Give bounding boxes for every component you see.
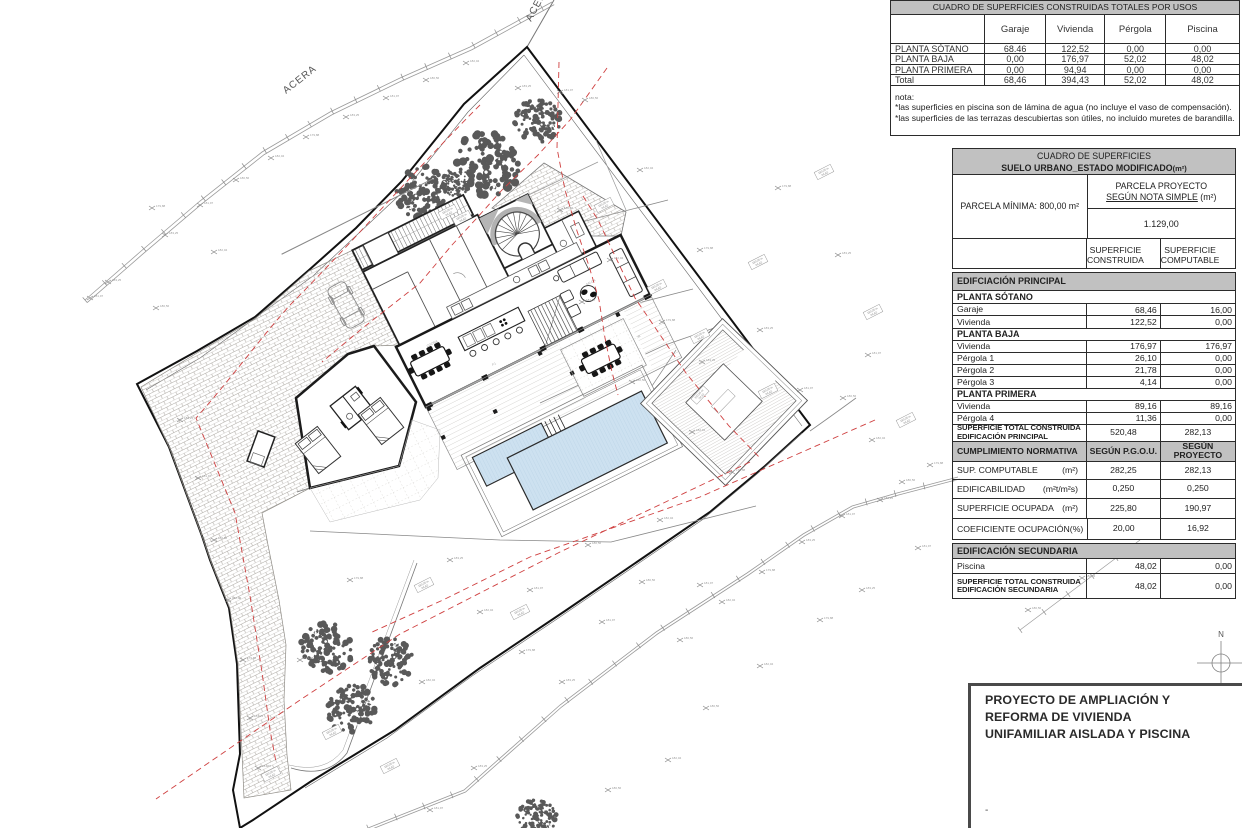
svg-text:180,56: 180,56 xyxy=(240,176,250,180)
svg-text:180,56: 180,56 xyxy=(636,378,646,382)
svg-text:181,97: 181,97 xyxy=(202,474,212,478)
svg-text:179,88: 179,88 xyxy=(354,576,364,580)
svg-text:182,04: 182,04 xyxy=(426,678,436,682)
svg-text:181,97: 181,97 xyxy=(872,351,882,355)
svg-text:180,56: 180,56 xyxy=(847,394,857,398)
svg-text:183,25: 183,25 xyxy=(764,326,774,330)
svg-text:181,97: 181,97 xyxy=(262,764,272,768)
svg-text:179,88: 179,88 xyxy=(736,468,746,472)
svg-text:180,56: 180,56 xyxy=(710,704,720,708)
svg-text:181,97: 181,97 xyxy=(922,544,932,548)
svg-text:180,56: 180,56 xyxy=(160,304,170,308)
svg-text:182,04: 182,04 xyxy=(644,166,654,170)
svg-text:182,04: 182,04 xyxy=(764,662,774,666)
svg-text:181,97: 181,97 xyxy=(390,94,400,98)
svg-text:180,56: 180,56 xyxy=(564,206,574,210)
svg-text:179,88: 179,88 xyxy=(156,204,166,208)
svg-text:182,04: 182,04 xyxy=(218,248,228,252)
svg-text:179,88: 179,88 xyxy=(766,568,776,572)
svg-text:179,88: 179,88 xyxy=(304,656,314,660)
svg-text:181,97: 181,97 xyxy=(94,294,104,298)
svg-text:182,04: 182,04 xyxy=(664,516,674,520)
svg-text:183,25: 183,25 xyxy=(454,556,464,560)
svg-text:N: N xyxy=(1218,630,1224,639)
svg-text:183,25: 183,25 xyxy=(254,714,264,718)
svg-text:182,04: 182,04 xyxy=(696,428,706,432)
svg-text:179,88: 179,88 xyxy=(247,656,257,660)
svg-text:180,56: 180,56 xyxy=(218,536,228,540)
svg-text:183,25: 183,25 xyxy=(112,278,122,282)
svg-text:179,88: 179,88 xyxy=(310,133,320,137)
svg-text:181,97: 181,97 xyxy=(804,386,814,390)
svg-text:180,56: 180,56 xyxy=(906,478,916,482)
svg-text:180,56: 180,56 xyxy=(430,76,440,80)
svg-text:183,25: 183,25 xyxy=(566,678,576,682)
svg-text:180,56: 180,56 xyxy=(592,541,602,545)
svg-text:181,97: 181,97 xyxy=(846,512,856,516)
svg-text:181,97: 181,97 xyxy=(704,581,714,585)
svg-text:179,88: 179,88 xyxy=(666,318,676,322)
svg-text:181,97: 181,97 xyxy=(564,88,574,92)
svg-text:182,04: 182,04 xyxy=(484,608,494,612)
svg-text:183,25: 183,25 xyxy=(522,84,532,88)
svg-text:179,88: 179,88 xyxy=(934,461,944,465)
svg-text:180,56: 180,56 xyxy=(684,636,694,640)
svg-text:181,97: 181,97 xyxy=(606,618,616,622)
svg-text:183,25: 183,25 xyxy=(806,538,816,542)
svg-text:182,04: 182,04 xyxy=(614,256,624,260)
svg-text:183,25: 183,25 xyxy=(884,496,894,500)
svg-text:183,25: 183,25 xyxy=(706,358,716,362)
svg-text:183,25: 183,25 xyxy=(350,113,360,117)
svg-text:179,88: 179,88 xyxy=(526,648,536,652)
svg-text:179,88: 179,88 xyxy=(824,616,834,620)
svg-text:182,04: 182,04 xyxy=(275,154,285,158)
svg-text:183,25: 183,25 xyxy=(169,231,179,235)
svg-text:182,04: 182,04 xyxy=(876,436,886,440)
svg-text:182,04: 182,04 xyxy=(470,59,480,63)
svg-text:179,88: 179,88 xyxy=(782,184,792,188)
svg-text:180,56: 180,56 xyxy=(612,786,622,790)
svg-text:181,97: 181,97 xyxy=(434,806,444,810)
svg-text:183,25: 183,25 xyxy=(478,764,488,768)
svg-text:180,56: 180,56 xyxy=(1032,606,1042,610)
svg-text:182,04: 182,04 xyxy=(726,598,736,602)
svg-text:181,97: 181,97 xyxy=(204,201,214,205)
svg-text:182,04: 182,04 xyxy=(672,756,682,760)
svg-text:182,04: 182,04 xyxy=(232,596,242,600)
svg-text:180,56: 180,56 xyxy=(589,96,599,100)
svg-text:180,56: 180,56 xyxy=(646,578,656,582)
svg-text:181,97: 181,97 xyxy=(586,298,596,302)
svg-text:183,25: 183,25 xyxy=(866,586,876,590)
svg-text:181,97: 181,97 xyxy=(534,586,544,590)
svg-text:183,25: 183,25 xyxy=(184,416,194,420)
svg-text:179,88: 179,88 xyxy=(704,246,714,250)
svg-text:183,25: 183,25 xyxy=(842,251,852,255)
